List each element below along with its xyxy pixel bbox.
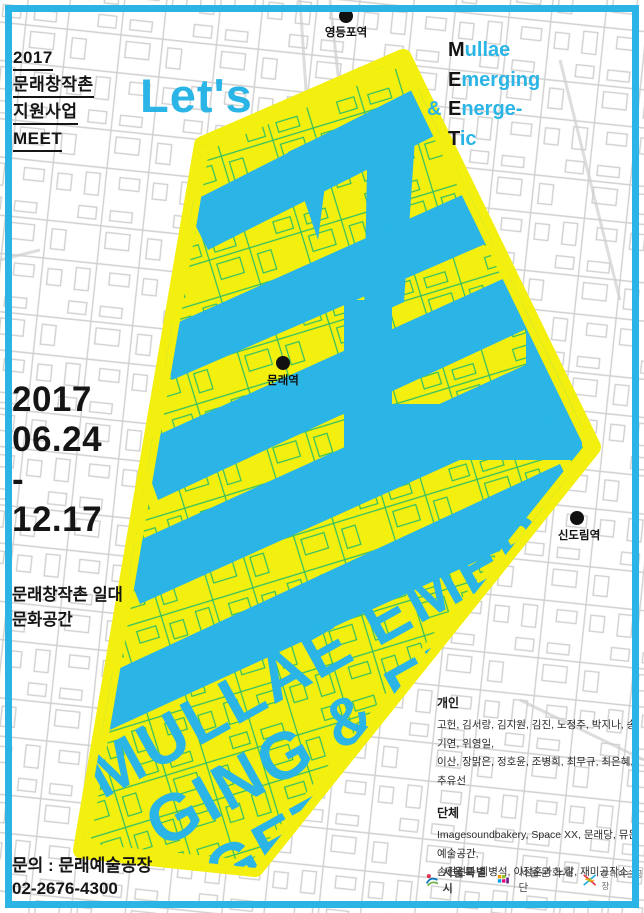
seoul-foundation-icon [497,873,510,888]
logo-divider [514,873,515,888]
venue-line-1: 문래창작촌 일대 [12,583,123,608]
individual-names-line-2: 이산, 장맑은, 정호윤, 조병희, 최무규, 최은혜, 추유선 [437,753,643,790]
acronym-rest: nerge- [461,98,522,120]
contact-line-2: 02-2676-4300 [12,877,152,900]
acronym-line-1: Mullae [448,36,540,66]
acronym-line-4: Tic [448,125,540,155]
acronym-ampersand: & [427,95,448,125]
event-dates: 2017 06.24 - 12.17 [12,380,102,540]
program-name-3: MEET [13,129,62,152]
program-label: 2017 문래창작촌 지원사업 MEET [13,48,94,156]
acronym-initial: E [448,98,461,120]
acronym-initial: T [448,128,460,150]
individual-names-line-1: 고헌, 김서랑, 김지원, 김진, 노정주, 박지나, 송기연, 위영일, [437,716,643,753]
mullae-art-factory-label: 문래예술공장 [602,868,644,892]
yeongdeungpo-station-label: 영등포역 [325,25,367,39]
acronym-initial: M [448,39,465,61]
yeongdeungpo-station-dot [339,9,353,23]
individual-title: 개인 [437,694,643,711]
program-year: 2017 [13,48,53,71]
sponsor-logos: 서울특별시 서울문화재단 문래예술공장 [425,864,644,896]
participants-list: 개인 고헌, 김서랑, 김지원, 김진, 노정주, 박지나, 송기연, 위영일,… [437,694,643,882]
date-end: 12.17 [12,500,102,540]
program-name-1: 문래창작촌 [13,75,94,98]
mullae-art-factory-icon [582,872,597,888]
venue-line-2: 문화공간 [12,608,123,633]
acronym-rest: ic [460,128,477,150]
logo-seoul-foundation: 서울문화재단 [497,865,575,895]
sindorim-station-dot [570,511,584,525]
meet-acronym: Mullae Emerging &Energe- Tic [448,36,540,154]
date-separator: - [12,460,102,500]
headline-lets: Let's [140,68,253,123]
contact-line-1: 문의 : 문래예술공장 [12,854,152,877]
sindorim-station-label: 신도림역 [558,528,600,542]
acronym-line-2: Emerging [448,66,540,96]
seoul-foundation-label: 서울문화재단 [519,865,576,895]
acronym-line-3: &Energe- [448,95,540,125]
acronym-rest: ullae [465,39,511,61]
logo-mullae-art-factory: 문래예술공장 [582,868,644,892]
date-start: 06.24 [12,420,102,460]
seoul-city-icon [425,872,439,888]
venue-text: 문래창작촌 일대 문화공간 [12,583,123,633]
group-names-line-1: Imagesoundbakery, Space XX, 문래당, 뮤온 예술공간… [437,826,643,863]
acronym-initial: E [448,69,461,91]
seoul-city-label: 서울특별시 [443,864,490,896]
contact-info: 문의 : 문래예술공장 02-2676-4300 [12,854,152,900]
acronym-rest: merging [461,69,540,91]
date-year: 2017 [12,380,102,420]
logo-seoul-city: 서울특별시 [425,864,490,896]
poster-mullae-meet: 영등포역 문래역 신도림역 MULLAE EMER GING & ENER GE… [0,0,644,913]
group-title: 단체 [437,804,643,821]
program-name-2: 지원사업 [13,102,78,125]
